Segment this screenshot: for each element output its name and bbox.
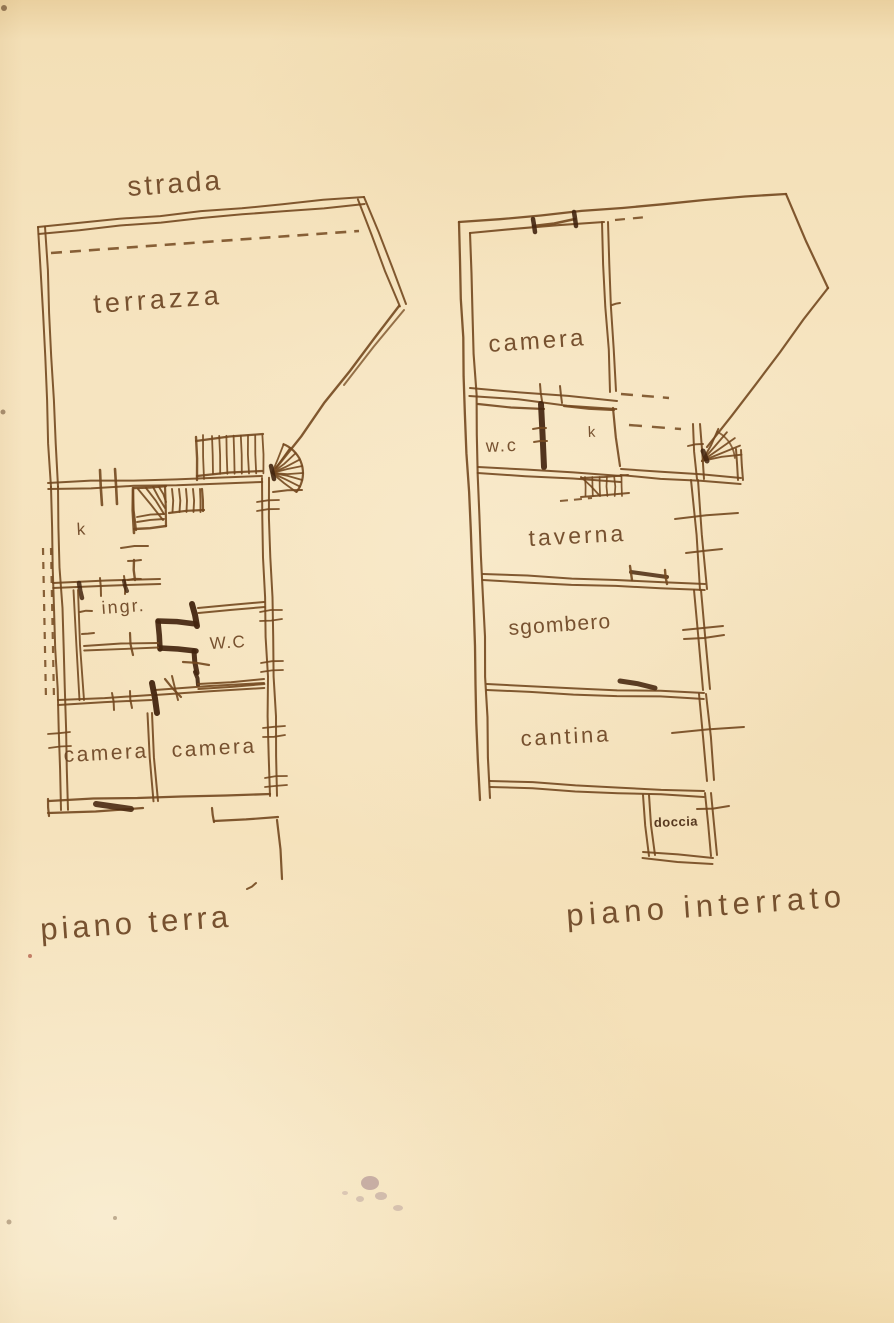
svg-text:k: k (76, 520, 86, 539)
svg-text:camera: camera (171, 735, 257, 762)
svg-text:piano terra: piano terra (39, 899, 233, 947)
svg-text:W.C: W.C (209, 632, 247, 653)
svg-text:camera: camera (488, 324, 588, 358)
svg-text:sgombero: sgombero (508, 610, 612, 640)
svg-text:camera: camera (63, 740, 149, 767)
svg-text:ingr.: ingr. (101, 595, 146, 618)
svg-text:taverna: taverna (528, 520, 627, 551)
svg-text:k: k (588, 424, 597, 441)
svg-text:w.c: w.c (484, 435, 518, 456)
svg-text:terrazza: terrazza (92, 280, 223, 319)
svg-text:strada: strada (126, 164, 224, 202)
svg-text:piano interrato: piano interrato (565, 878, 847, 932)
svg-text:doccia: doccia (654, 813, 699, 830)
svg-text:cantina: cantina (520, 721, 612, 751)
